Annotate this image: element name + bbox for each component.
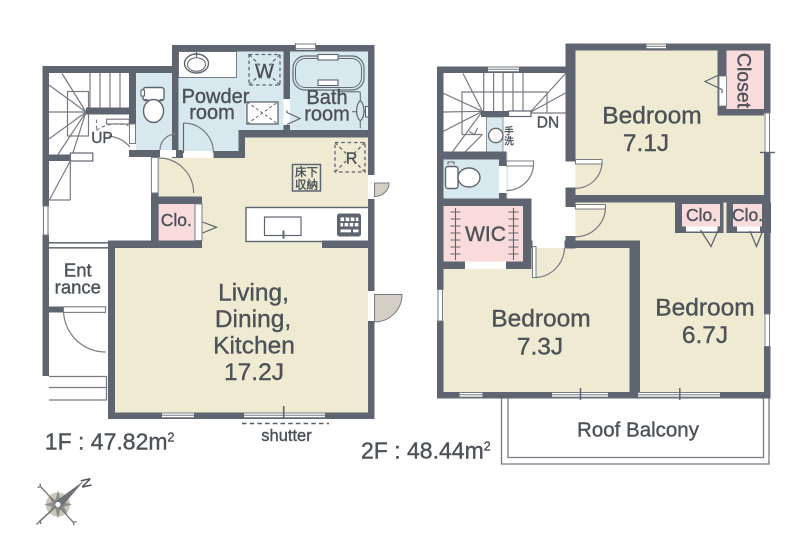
svg-text:UP: UP: [91, 130, 113, 147]
svg-text:2F : 48.44m2: 2F : 48.44m2: [361, 438, 491, 464]
svg-text:R: R: [346, 150, 358, 167]
svg-text:room: room: [189, 102, 235, 124]
svg-text:Bedroom: Bedroom: [602, 103, 701, 130]
svg-text:room: room: [304, 104, 350, 126]
svg-text:Dining,: Dining,: [215, 306, 291, 333]
svg-text:Living,: Living,: [218, 280, 289, 307]
svg-text:Closet: Closet: [733, 53, 755, 109]
svg-text:収納: 収納: [295, 179, 318, 192]
svg-text:洗: 洗: [504, 136, 514, 148]
svg-text:Clo.: Clo.: [161, 210, 192, 230]
svg-text:7.3J: 7.3J: [517, 334, 563, 361]
svg-text:Bedroom: Bedroom: [491, 306, 590, 333]
svg-text:Roof Balcony: Roof Balcony: [577, 419, 700, 442]
svg-text:W: W: [255, 61, 274, 83]
svg-text:Clo.: Clo.: [732, 205, 763, 225]
svg-text:rance: rance: [55, 277, 101, 298]
svg-text:Clo.: Clo.: [686, 205, 717, 225]
svg-text:DN: DN: [537, 115, 559, 132]
svg-text:Kitchen: Kitchen: [213, 333, 295, 360]
svg-text:WIC: WIC: [465, 223, 506, 246]
svg-text:1F : 47.82m2: 1F : 47.82m2: [45, 429, 175, 455]
svg-text:shutter: shutter: [261, 427, 312, 445]
svg-text:6.7J: 6.7J: [682, 322, 728, 349]
svg-text:7.1J: 7.1J: [623, 130, 669, 157]
svg-text:Bedroom: Bedroom: [655, 295, 754, 322]
svg-text:床下: 床下: [295, 165, 318, 179]
svg-text:17.2J: 17.2J: [224, 359, 284, 386]
